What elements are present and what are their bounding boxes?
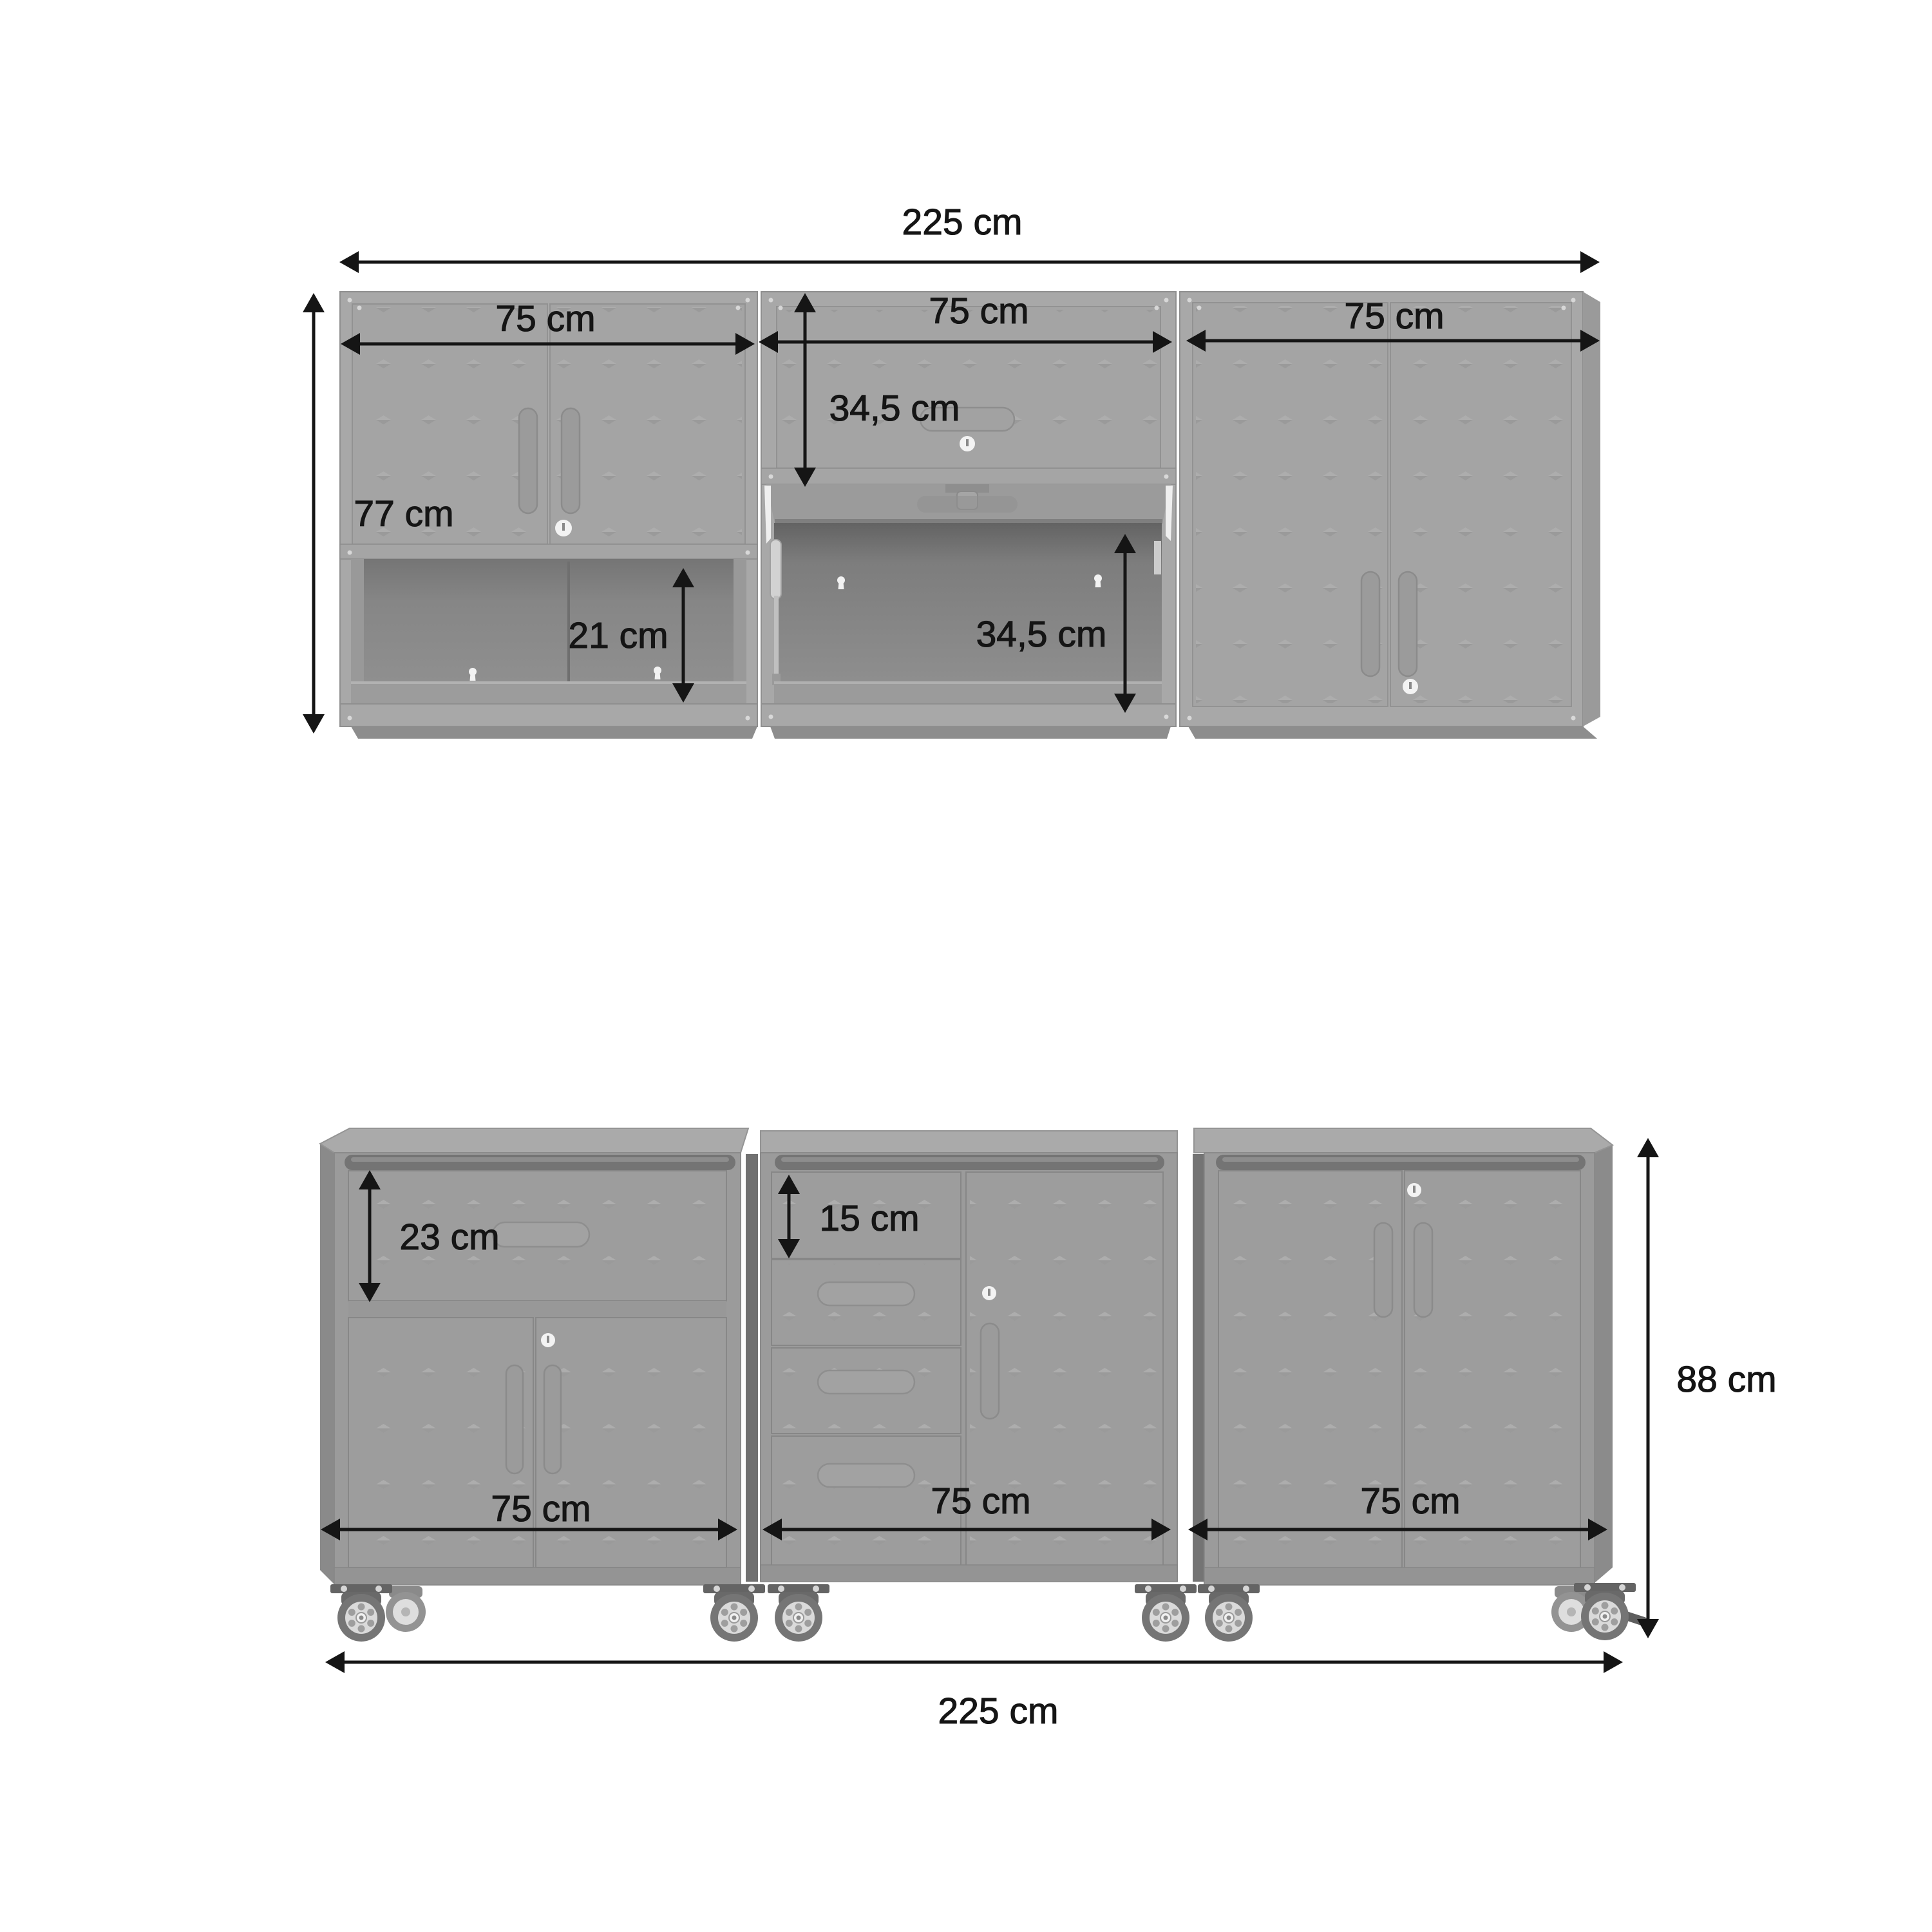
svg-text:34,5 cm: 34,5 cm bbox=[976, 614, 1107, 655]
svg-text:75 cm: 75 cm bbox=[929, 290, 1028, 332]
svg-text:225 cm: 225 cm bbox=[902, 202, 1023, 243]
svg-text:77 cm: 77 cm bbox=[354, 493, 453, 535]
svg-text:34,5 cm: 34,5 cm bbox=[829, 388, 960, 429]
svg-text:75 cm: 75 cm bbox=[1344, 296, 1444, 337]
svg-text:225 cm: 225 cm bbox=[938, 1690, 1059, 1732]
svg-text:88 cm: 88 cm bbox=[1676, 1359, 1776, 1400]
svg-text:75 cm: 75 cm bbox=[491, 1488, 591, 1529]
svg-text:75 cm: 75 cm bbox=[931, 1481, 1030, 1522]
svg-text:75 cm: 75 cm bbox=[495, 298, 595, 339]
svg-text:15 cm: 15 cm bbox=[819, 1198, 919, 1239]
svg-text:21 cm: 21 cm bbox=[568, 615, 668, 656]
svg-text:75 cm: 75 cm bbox=[1360, 1481, 1460, 1522]
svg-text:23 cm: 23 cm bbox=[399, 1217, 499, 1258]
